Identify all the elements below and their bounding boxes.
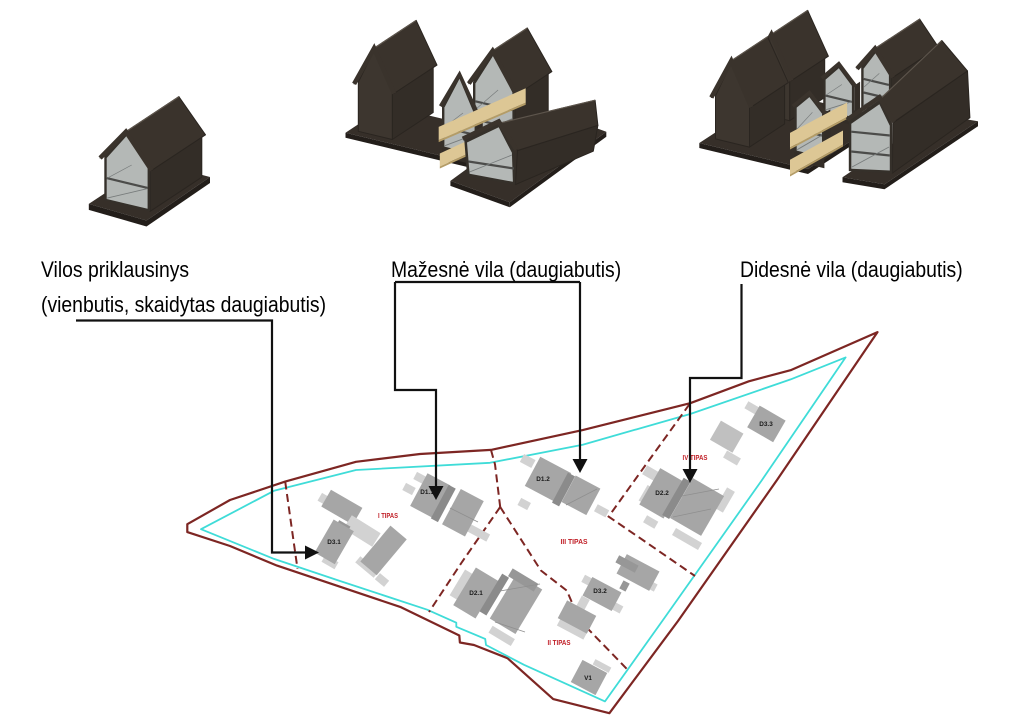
svg-text:V1: V1 bbox=[584, 675, 592, 682]
svg-text:II TIPAS: II TIPAS bbox=[548, 638, 571, 647]
svg-text:D2.1: D2.1 bbox=[469, 590, 483, 597]
svg-text:III TIPAS: III TIPAS bbox=[561, 537, 588, 546]
svg-text:D3.1: D3.1 bbox=[327, 539, 341, 546]
svg-text:D2.2: D2.2 bbox=[655, 490, 669, 497]
svg-text:D3.2: D3.2 bbox=[593, 588, 607, 595]
svg-text:D1.2: D1.2 bbox=[536, 476, 550, 483]
svg-text:D3.3: D3.3 bbox=[759, 421, 773, 428]
svg-text:I TIPAS: I TIPAS bbox=[378, 511, 398, 520]
svg-text:IV TIPAS: IV TIPAS bbox=[683, 453, 708, 462]
